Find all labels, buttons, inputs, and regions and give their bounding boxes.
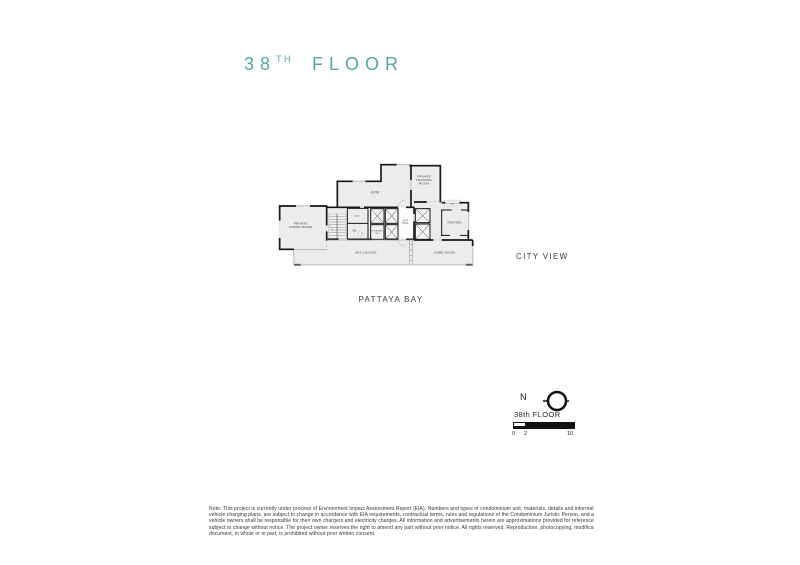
stairs xyxy=(328,214,346,238)
label-training-3: ROOM xyxy=(419,181,429,185)
north-label: N xyxy=(520,392,527,402)
disclaimer-note: Note: This project is currently under pr… xyxy=(209,506,594,537)
scale-bar-segment xyxy=(514,423,526,426)
disclaimer-line: document, in whole or in part, is prohib… xyxy=(209,531,594,537)
label-fireman-2: LIFT xyxy=(375,233,381,235)
scale-ticks: 0 2 10 xyxy=(513,431,577,439)
toilet-fixture xyxy=(358,232,361,236)
label-private-dining-2: DINING ROOM xyxy=(289,225,312,229)
label-game-room: GAME ROOM xyxy=(434,251,455,255)
scale-tick-2: 2 xyxy=(524,431,527,437)
label-gym: GYM xyxy=(371,190,379,194)
scale-tick-0: 0 xyxy=(512,431,515,437)
floor-plan: PRIVATE DINING ROOM GYM PRIVATE TRAINING… xyxy=(260,140,520,300)
disclaimer-line: vehicle owners shall be responsible for … xyxy=(209,518,594,524)
legend-floor-label: 38th FLOOR xyxy=(514,410,561,419)
brochure-page: 38TH FLOOR xyxy=(0,0,800,565)
city-view-label: CITY VIEW xyxy=(516,252,568,261)
disclaimer-line: subject to change without notice. The pr… xyxy=(209,525,594,531)
label-sky-lounge: SKY LOUNGE xyxy=(355,251,376,255)
label-lift-hall-1: LIFT xyxy=(403,220,409,222)
pattaya-bay-label: PATTAYA BAY xyxy=(341,295,441,304)
floor-plan-svg: PRIVATE DINING ROOM GYM PRIVATE TRAINING… xyxy=(260,140,520,300)
floor-word: FLOOR xyxy=(312,54,404,74)
label-theater: THEATER xyxy=(447,220,461,224)
north-compass-icon xyxy=(532,390,576,412)
scale-bar xyxy=(513,422,575,429)
floor-ordinal: TH xyxy=(276,54,293,64)
floor-number: 38 xyxy=(244,54,276,74)
scale-tick-10: 10 xyxy=(567,431,573,437)
page-title: 38TH FLOOR xyxy=(244,54,404,75)
